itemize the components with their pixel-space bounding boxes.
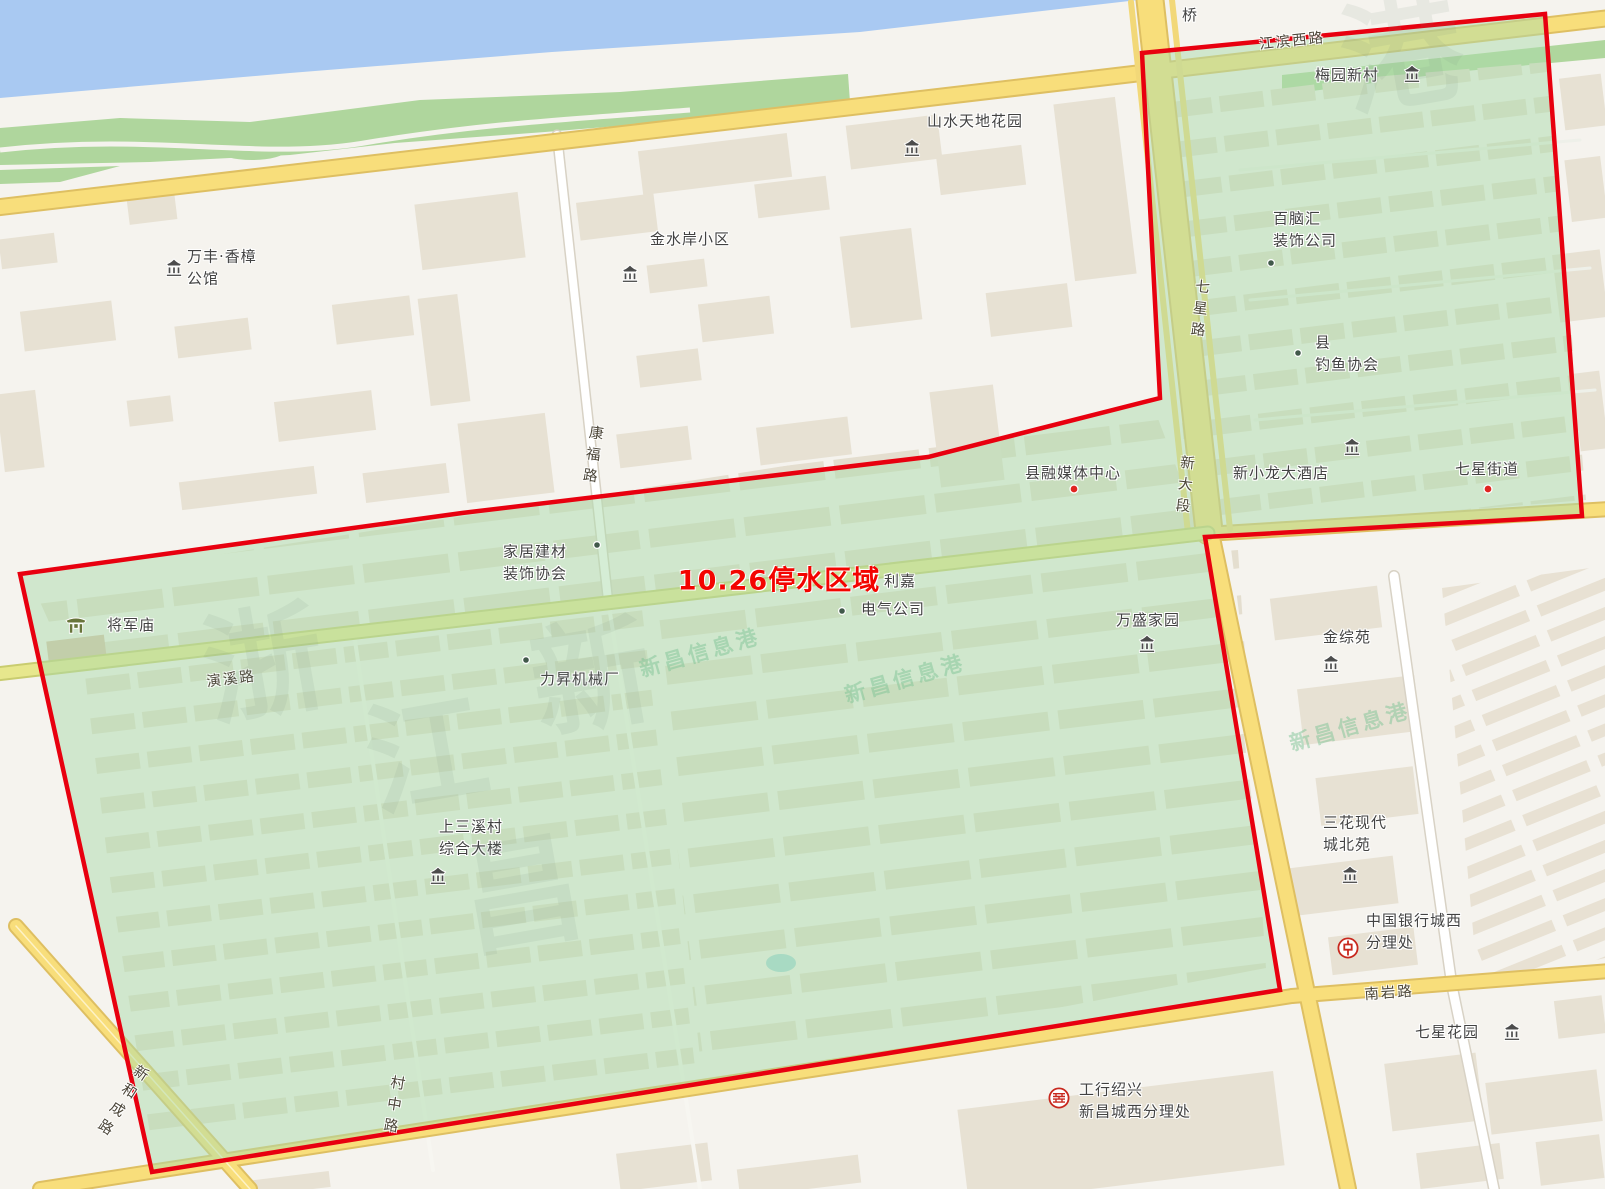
watermark-2: 新昌信息港 (841, 646, 969, 709)
watermark-3: 新昌信息港 (1286, 694, 1414, 757)
icbc-bank-icon[interactable] (1048, 1087, 1071, 1110)
label-qixing-huayuan[interactable]: 七星花园 (1415, 1022, 1479, 1044)
lisheng-dot-icon[interactable] (521, 655, 531, 665)
qixinghuayuan-building-icon[interactable] (1502, 1022, 1522, 1042)
watermark-big-3: 新 (516, 572, 664, 764)
shangsanxi-building-icon[interactable] (428, 866, 448, 886)
map-label-layer: 桥江滨西路梅园新村山水天地花园百脑汇 装饰公司万丰·香樟 公馆金水岸小区康福路七… (0, 0, 1605, 1189)
meiyuan-building-icon[interactable] (1402, 64, 1422, 84)
label-dianqi-gongsi[interactable]: 电气公司 (861, 599, 925, 621)
watermark-big-5: 港 (1326, 0, 1474, 141)
temple-icon[interactable] (65, 616, 87, 635)
outage-area-title: 10.26停水区域 (678, 559, 880, 598)
road-xinhechenglu: 新和成路 (89, 1060, 153, 1144)
label-xian-diaoyu-xiehui[interactable]: 县 钓鱼协会 (1315, 332, 1379, 376)
jinzongyuan-building-icon[interactable] (1321, 654, 1341, 674)
road-nanyanlu: 南岩路 (1364, 980, 1415, 1004)
watermark-big-1: 浙 (188, 559, 336, 751)
jiaju-dot-icon[interactable] (592, 540, 602, 550)
wansheng-building-icon[interactable] (1137, 634, 1157, 654)
sanhua-building-icon[interactable] (1340, 865, 1360, 885)
label-shanshui-tiandi-huayuan[interactable]: 山水天地花园 (927, 111, 1023, 133)
label-jiaju-jiancai-zhuangshi-xiehui[interactable]: 家居建材 装饰协会 (503, 541, 567, 585)
jiedao-dot-icon[interactable] (1482, 483, 1494, 495)
watermark-big-4: 昌 (446, 789, 594, 981)
road-qixinglu: 七星路 (1185, 278, 1213, 344)
shanshui-building-icon[interactable] (902, 138, 922, 158)
label-bainaohui-zhuangshi-gongsi[interactable]: 百脑汇 装饰公司 (1273, 208, 1337, 252)
hotel-building-icon[interactable] (1342, 437, 1362, 457)
jinshuian-building-icon[interactable] (620, 264, 640, 284)
watermark-1: 新昌信息港 (636, 620, 764, 683)
diaoyu-dot-icon[interactable] (1293, 348, 1303, 358)
map-canvas[interactable]: 桥江滨西路梅园新村山水天地花园百脑汇 装饰公司万丰·香樟 公馆金水岸小区康福路七… (0, 0, 1605, 1189)
label-bridge[interactable]: 桥 (1182, 5, 1198, 27)
label-jinshuian-xiaoqu[interactable]: 金水岸小区 (650, 229, 730, 251)
label-jinzongyuan[interactable]: 金综苑 (1323, 627, 1371, 649)
label-xinxiaolong-dajiudian[interactable]: 新小龙大酒店 (1233, 463, 1329, 485)
label-gonghang-shaoxing-xinchang-chengxi-fenlichu[interactable]: 工行绍兴 新昌城西分理处 (1079, 1079, 1191, 1123)
label-zhongguo-yinhang-chengxi-fenlichu[interactable]: 中国银行城西 分理处 (1366, 910, 1462, 954)
road-xindaduan: 新大段 (1170, 454, 1198, 520)
label-jiangjunmiao[interactable]: 将军庙 (107, 615, 155, 637)
label-wansheng-jiayuan[interactable]: 万盛家园 (1116, 610, 1180, 632)
road-jiangbin-xilu: 江滨西路 (1258, 26, 1326, 54)
label-qixing-jiedao[interactable]: 七星街道 (1455, 459, 1519, 481)
label-xian-rongmeiti-zhongxin[interactable]: 县融媒体中心 (1025, 463, 1121, 485)
label-sanhua-xiandaicheng-beiyuan[interactable]: 三花现代 城北苑 (1323, 812, 1387, 856)
road-kangfulu: 康福路 (577, 424, 607, 491)
road-cunzhonglu: 村中路 (378, 1074, 409, 1141)
dianqi-dot-icon[interactable] (837, 606, 847, 616)
bainaohui-dot-icon[interactable] (1266, 258, 1276, 268)
label-wanfeng-xiangzhang-gongguan[interactable]: 万丰·香樟 公馆 (187, 246, 257, 290)
wanfeng-building-icon[interactable] (164, 258, 184, 278)
rongmeiti-dot-icon[interactable] (1068, 483, 1080, 495)
label-lijia[interactable]: 利嘉 (884, 571, 916, 593)
bank-of-china-icon[interactable] (1337, 937, 1360, 960)
